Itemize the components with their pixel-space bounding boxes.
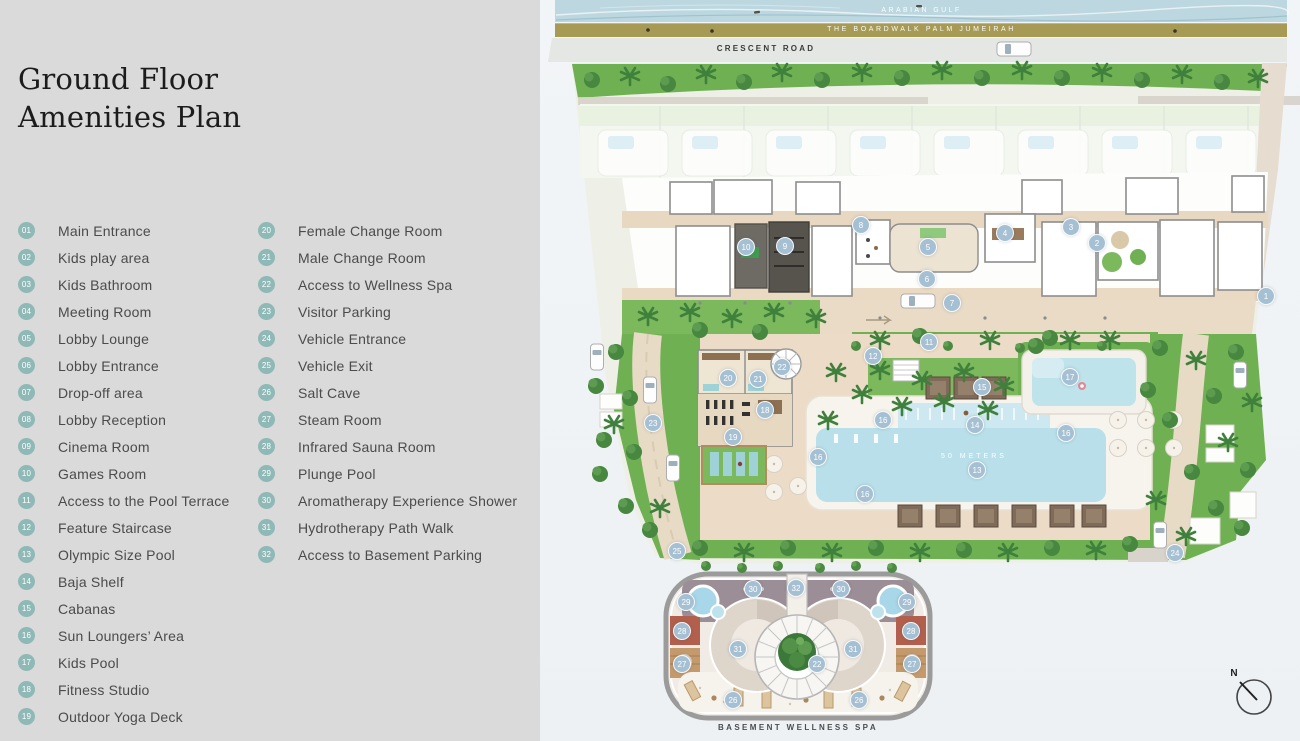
legend-item-label: Drop-off area	[58, 385, 143, 401]
legend-item-18: 18Fitness Studio	[18, 676, 248, 703]
legend-number-badge: 22	[258, 276, 275, 293]
legend-item-label: Cabanas	[58, 601, 115, 617]
legend-item-label: Vehicle Entrance	[298, 331, 406, 347]
map-marker-26: 26	[850, 691, 868, 709]
legend-number-badge: 31	[258, 519, 275, 536]
map-marker-18: 18	[756, 401, 774, 419]
legend-item-label: Baja Shelf	[58, 574, 124, 590]
legend-item-label: Access to Basement Parking	[298, 547, 482, 563]
legend-item-12: 12Feature Staircase	[18, 514, 248, 541]
legend-item-label: Cinema Room	[58, 439, 150, 455]
map-marker-13: 13	[968, 461, 986, 479]
map-marker-25: 25	[668, 542, 686, 560]
legend-item-label: Sun Loungers’ Area	[58, 628, 184, 644]
legend-item-19: 19Outdoor Yoga Deck	[18, 703, 248, 730]
map-marker-3: 3	[1062, 218, 1080, 236]
legend-item-label: Kids play area	[58, 250, 150, 266]
legend-item-07: 07Drop-off area	[18, 379, 248, 406]
legend-number-badge: 04	[18, 303, 35, 320]
legend-item-label: Steam Room	[298, 412, 382, 428]
legend-item-24: 24Vehicle Entrance	[258, 325, 528, 352]
legend-item-17: 17Kids Pool	[18, 649, 248, 676]
map-marker-27: 27	[673, 655, 691, 673]
legend-item-27: 27Steam Room	[258, 406, 528, 433]
legend-item-label: Access to Wellness Spa	[298, 277, 452, 293]
legend-item-label: Salt Cave	[298, 385, 361, 401]
map-marker-23: 23	[644, 414, 662, 432]
legend-number-badge: 03	[18, 276, 35, 293]
map-marker-16: 16	[874, 411, 892, 429]
map-marker-31: 31	[729, 640, 747, 658]
legend-item-label: Games Room	[58, 466, 146, 482]
legend-item-label: Kids Pool	[58, 655, 119, 671]
legend-item-30: 30Aromatherapy Experience Shower	[258, 487, 528, 514]
legend-number-badge: 01	[18, 222, 35, 239]
legend-number-badge: 32	[258, 546, 275, 563]
legend-item-label: Female Change Room	[298, 223, 442, 239]
legend-item-label: Kids Bathroom	[58, 277, 152, 293]
legend-number-badge: 09	[18, 438, 35, 455]
map-marker-5: 5	[919, 238, 937, 256]
legend-item-03: 03Kids Bathroom	[18, 271, 248, 298]
legend-item-28: 28Infrared Sauna Room	[258, 433, 528, 460]
map-marker-11: 11	[920, 333, 938, 351]
amenities-plan-page: Ground Floor Amenities Plan 01Main Entra…	[0, 0, 1300, 741]
map-marker-16: 16	[856, 485, 874, 503]
legend-item-label: Lobby Reception	[58, 412, 166, 428]
map-marker-8: 8	[852, 216, 870, 234]
legend-item-label: Main Entrance	[58, 223, 151, 239]
legend-item-13: 13Olympic Size Pool	[18, 541, 248, 568]
map-marker-16: 16	[809, 448, 827, 466]
legend-item-label: Outdoor Yoga Deck	[58, 709, 183, 725]
legend-item-09: 09Cinema Room	[18, 433, 248, 460]
legend-number-badge: 13	[18, 546, 35, 563]
map-marker-27: 27	[903, 655, 921, 673]
map-marker-22: 22	[808, 655, 826, 673]
legend-number-badge: 30	[258, 492, 275, 509]
legend-item-label: Plunge Pool	[298, 466, 376, 482]
map-marker-30: 30	[832, 580, 850, 598]
legend-item-label: Lobby Entrance	[58, 358, 159, 374]
legend-item-16: 16Sun Loungers’ Area	[18, 622, 248, 649]
legend-item-15: 15Cabanas	[18, 595, 248, 622]
map-marker-31: 31	[844, 640, 862, 658]
legend-number-badge: 27	[258, 411, 275, 428]
legend-item-label: Lobby Lounge	[58, 331, 149, 347]
legend-item-label: Visitor Parking	[298, 304, 391, 320]
legend-item-11: 11Access to the Pool Terrace	[18, 487, 248, 514]
legend-item-05: 05Lobby Lounge	[18, 325, 248, 352]
legend-column-1: 01Main Entrance02Kids play area03Kids Ba…	[18, 217, 248, 730]
legend-number-badge: 20	[258, 222, 275, 239]
legend-number-badge: 17	[18, 654, 35, 671]
legend-item-10: 10Games Room	[18, 460, 248, 487]
legend-number-badge: 29	[258, 465, 275, 482]
legend-item-label: Aromatherapy Experience Shower	[298, 493, 517, 509]
map-marker-15: 15	[973, 378, 991, 396]
legend-number-badge: 16	[18, 627, 35, 644]
legend-item-32: 32Access to Basement Parking	[258, 541, 528, 568]
legend-number-badge: 02	[18, 249, 35, 266]
map-marker-6: 6	[918, 270, 936, 288]
legend-item-21: 21Male Change Room	[258, 244, 528, 271]
legend-item-label: Hydrotherapy Path Walk	[298, 520, 454, 536]
legend-number-badge: 26	[258, 384, 275, 401]
legend-number-badge: 23	[258, 303, 275, 320]
map-marker-28: 28	[673, 622, 691, 640]
map-marker-29: 29	[898, 593, 916, 611]
legend-column-2: 20Female Change Room21Male Change Room22…	[258, 217, 528, 568]
legend-number-badge: 21	[258, 249, 275, 266]
legend-item-23: 23Visitor Parking	[258, 298, 528, 325]
map-marker-16: 16	[1057, 424, 1075, 442]
legend-item-31: 31Hydrotherapy Path Walk	[258, 514, 528, 541]
legend-item-02: 02Kids play area	[18, 244, 248, 271]
legend-item-label: Olympic Size Pool	[58, 547, 175, 563]
map-marker-22: 22	[773, 358, 791, 376]
map-marker-30: 30	[744, 580, 762, 598]
legend-number-badge: 10	[18, 465, 35, 482]
legend-number-badge: 15	[18, 600, 35, 617]
legend-item-label: Feature Staircase	[58, 520, 172, 536]
legend-number-badge: 18	[18, 681, 35, 698]
legend-item-label: Fitness Studio	[58, 682, 150, 698]
map-marker-24: 24	[1166, 544, 1184, 562]
legend-number-badge: 08	[18, 411, 35, 428]
map-marker-10: 10	[737, 238, 755, 256]
legend-item-label: Meeting Room	[58, 304, 151, 320]
map-marker-21: 21	[749, 370, 767, 388]
legend-number-badge: 07	[18, 384, 35, 401]
page-title-line1: Ground Floor	[18, 60, 241, 98]
map-marker-19: 19	[724, 428, 742, 446]
legend-item-06: 06Lobby Entrance	[18, 352, 248, 379]
legend-number-badge: 19	[18, 708, 35, 725]
page-title: Ground Floor Amenities Plan	[18, 60, 241, 136]
map-marker-14: 14	[966, 416, 984, 434]
legend-item-22: 22Access to Wellness Spa	[258, 271, 528, 298]
map-marker-29: 29	[677, 593, 695, 611]
map-marker-2: 2	[1088, 234, 1106, 252]
legend-item-label: Infrared Sauna Room	[298, 439, 436, 455]
legend-number-badge: 12	[18, 519, 35, 536]
legend-number-badge: 06	[18, 357, 35, 374]
legend-panel: Ground Floor Amenities Plan 01Main Entra…	[0, 0, 540, 741]
map-marker-1: 1	[1257, 287, 1275, 305]
map-marker-28: 28	[902, 622, 920, 640]
legend-number-badge: 14	[18, 573, 35, 590]
legend-number-badge: 28	[258, 438, 275, 455]
page-title-line2: Amenities Plan	[18, 98, 241, 136]
map-marker-12: 12	[864, 347, 882, 365]
map-marker-32: 32	[787, 579, 805, 597]
map-marker-7: 7	[943, 294, 961, 312]
map-marker-17: 17	[1061, 368, 1079, 386]
legend-item-label: Male Change Room	[298, 250, 426, 266]
legend-number-badge: 05	[18, 330, 35, 347]
legend-item-01: 01Main Entrance	[18, 217, 248, 244]
legend-item-26: 26Salt Cave	[258, 379, 528, 406]
map-marker-26: 26	[724, 691, 742, 709]
legend-number-badge: 25	[258, 357, 275, 374]
legend-item-04: 04Meeting Room	[18, 298, 248, 325]
legend-item-29: 29Plunge Pool	[258, 460, 528, 487]
legend-number-badge: 11	[18, 492, 35, 509]
legend-item-20: 20Female Change Room	[258, 217, 528, 244]
legend-number-badge: 24	[258, 330, 275, 347]
legend-item-08: 08Lobby Reception	[18, 406, 248, 433]
map-marker-20: 20	[719, 369, 737, 387]
legend-item-14: 14Baja Shelf	[18, 568, 248, 595]
map-marker-9: 9	[776, 237, 794, 255]
legend-item-label: Access to the Pool Terrace	[58, 493, 229, 509]
legend-item-25: 25Vehicle Exit	[258, 352, 528, 379]
legend-item-label: Vehicle Exit	[298, 358, 373, 374]
map-marker-4: 4	[996, 224, 1014, 242]
